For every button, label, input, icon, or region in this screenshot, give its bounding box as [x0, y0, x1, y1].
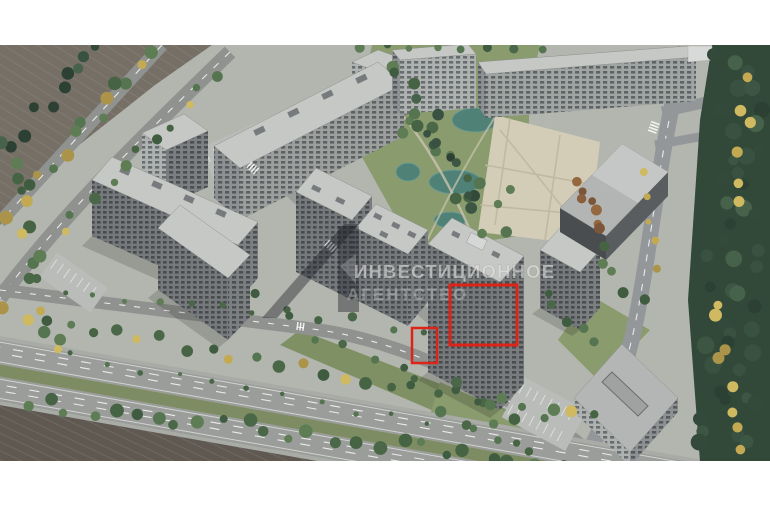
- watermark-text-line1: ИНВЕСТИЦИОННОЕ: [354, 261, 555, 282]
- apartment-tower-highlighted: [418, 218, 524, 418]
- apartment-building-top-center: [392, 44, 476, 114]
- aerial-render: ИНВЕСТИЦИОННОЕ АГЕНТСТВО: [0, 0, 770, 510]
- letterbox-top: [0, 0, 770, 45]
- letterbox-bottom: [0, 461, 770, 510]
- render-viewport: ИНВЕСТИЦИОННОЕ АГЕНТСТВО: [0, 0, 770, 510]
- pond: [396, 163, 420, 181]
